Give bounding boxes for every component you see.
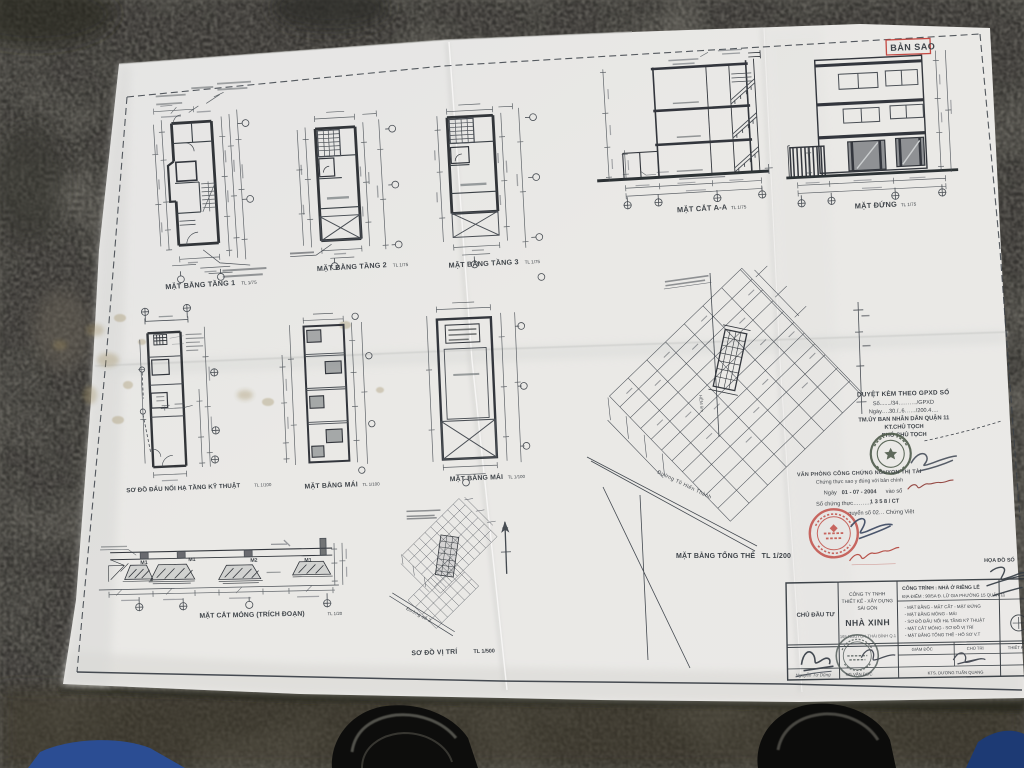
svg-text:NHÀ XINH: NHÀ XINH xyxy=(845,617,890,628)
svg-text:TL 1/75: TL 1/75 xyxy=(901,202,917,208)
svg-text:CHỦ ĐẦU TƯ: CHỦ ĐẦU TƯ xyxy=(797,611,835,619)
svg-text:M2: M2 xyxy=(250,558,257,564)
svg-text:M1: M1 xyxy=(304,558,311,564)
svg-text:TL 1/100: TL 1/100 xyxy=(362,481,380,487)
svg-text:M1: M1 xyxy=(188,557,195,563)
svg-text:TL 1/75: TL 1/75 xyxy=(731,204,747,210)
svg-text:THIẾT KẾ: THIẾT KẾ xyxy=(1008,645,1024,650)
svg-text:TL 1/75: TL 1/75 xyxy=(241,280,257,286)
svg-text:HỌA ĐỒ SỐ: HỌA ĐỒ SỐ xyxy=(984,556,1015,564)
svg-text:Nguyễn Tư Dũng: Nguyễn Tư Dũng xyxy=(796,671,832,678)
svg-text:KT.CHỦ TỌCH: KT.CHỦ TỌCH xyxy=(884,423,923,431)
svg-text:CHỦ TRÌ: CHỦ TRÌ xyxy=(967,646,984,651)
svg-text:TL 1/100: TL 1/100 xyxy=(254,482,272,488)
svg-text:01 - 07 - 2004: 01 - 07 - 2004 xyxy=(842,489,878,496)
svg-text:TL 1/100: TL 1/100 xyxy=(508,474,526,480)
svg-text:GIÁM ĐỐC: GIÁM ĐỐC xyxy=(912,646,933,651)
svg-text:MẶT BẰNG TỔNG THỂ TL 1/200: MẶT BẰNG TỔNG THỂ TL 1/200 xyxy=(676,551,791,560)
svg-text:vào sổ: vào sổ xyxy=(886,487,903,494)
svg-text:TL 1/500: TL 1/500 xyxy=(473,648,495,655)
svg-text:TL 1/75: TL 1/75 xyxy=(393,262,409,268)
svg-text:BẢN SAO: BẢN SAO xyxy=(890,40,935,53)
svg-text:TL 1/20: TL 1/20 xyxy=(327,611,342,616)
svg-text:M1: M1 xyxy=(140,560,147,566)
svg-text:Ngày: Ngày xyxy=(824,490,837,496)
svg-text:KTS. DƯƠNG TUẤN QUANG: KTS. DƯƠNG TUẤN QUANG xyxy=(928,670,984,676)
svg-text:1 3 5 8 / CT: 1 3 5 8 / CT xyxy=(870,499,900,506)
svg-text:NG.VĂN ĐỨC: NG.VĂN ĐỨC xyxy=(846,672,873,677)
svg-text:TL 1/75: TL 1/75 xyxy=(524,259,540,265)
svg-text:- MẶT BẰNG MÓNG - MÁI: - MẶT BẰNG MÓNG - MÁI xyxy=(905,611,957,617)
